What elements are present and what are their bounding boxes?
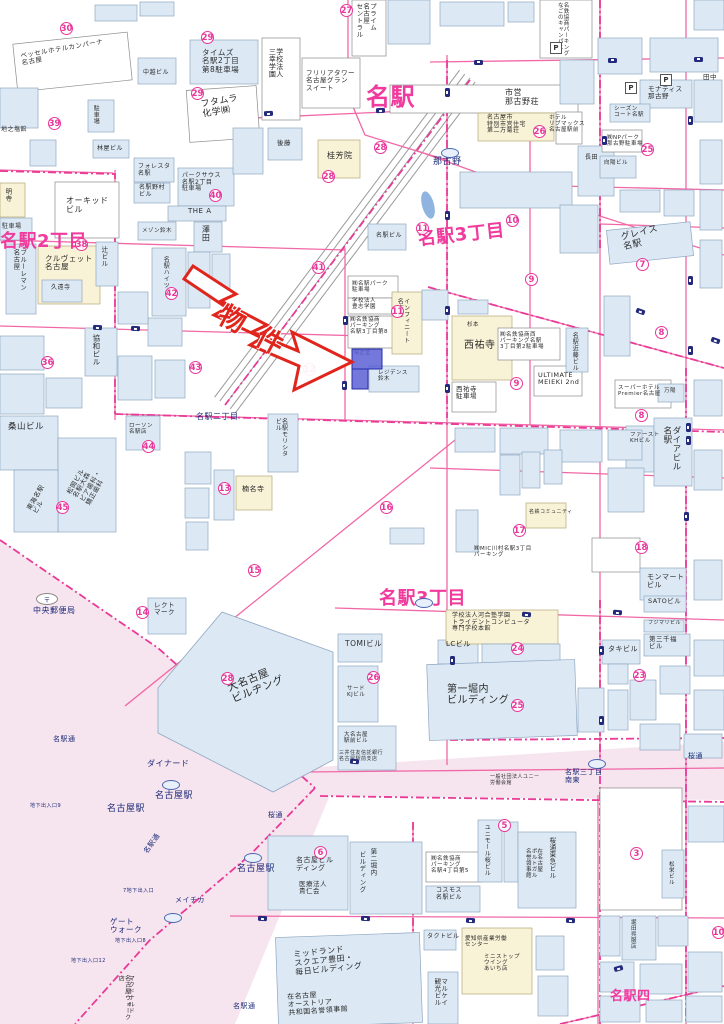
building: [190, 40, 258, 84]
map-label: ㈱名鉄協商西 パーキング名駅 3丁目第2駐車場: [500, 332, 544, 350]
road-centerline: [0, 240, 345, 250]
district-boundary-line: [0, 540, 315, 788]
block-number-badge: 25: [641, 143, 654, 156]
map-label: クルヴェット 名古屋: [45, 255, 93, 272]
transit-stop-icon: [445, 88, 450, 97]
building: [694, 640, 724, 676]
block-number-badge: 6: [314, 846, 327, 859]
transit-stop-icon: [686, 436, 691, 445]
map-label: 名駅ビル: [376, 233, 402, 240]
district-boundary-line: [115, 414, 724, 432]
map-label: 学校法人河合塾学園 トライデントコンピュータ 専門学校本館: [452, 613, 530, 633]
map-label: 名駅二丁目: [196, 413, 239, 422]
block-number-badge: 28: [322, 170, 335, 183]
building: [148, 598, 186, 634]
map-label: レジデンス 鈴木: [378, 370, 408, 382]
post-office-icon: 〒: [36, 593, 58, 605]
building: [452, 382, 496, 412]
building: [538, 976, 568, 1016]
building: [440, 2, 504, 26]
building: [46, 378, 82, 408]
building: [38, 246, 100, 304]
block-number-badge: 5: [498, 819, 511, 832]
map-label: 名駅通: [143, 833, 162, 856]
building: [600, 788, 682, 910]
map-label: フォレスタ 名駅: [138, 164, 171, 177]
building: [134, 158, 174, 182]
map-label: 東海名駅 ビル: [26, 484, 53, 516]
building: [212, 254, 230, 298]
district-label: 名駅2丁目: [0, 232, 87, 252]
transit-stop-icon: [688, 346, 693, 355]
building: [600, 156, 636, 178]
map-label: 松岡ビル 名駅大森 ピア歯科・ 矯正歯科: [66, 462, 109, 507]
map-label: 松栄ビル: [667, 861, 673, 885]
building: [522, 452, 540, 488]
block-number-badge: 3: [630, 847, 643, 860]
map-label: フジマリビル: [648, 621, 681, 627]
building: [644, 620, 684, 632]
building: [504, 822, 518, 882]
map-label: 堀田呉服店: [629, 919, 635, 949]
building: [118, 292, 148, 324]
property-highlight[interactable]: [352, 349, 382, 369]
building: [424, 930, 456, 950]
road-centerline: [125, 436, 460, 706]
building: [498, 328, 560, 360]
map-label: 名古屋駅: [107, 804, 145, 814]
map-label: THE A: [188, 208, 211, 216]
building: [615, 380, 671, 408]
block-number-badge: 9: [525, 273, 538, 286]
map-label: ダイナード: [147, 760, 189, 769]
transit-stop-icon: [465, 917, 474, 922]
building: [428, 972, 458, 1024]
building: [96, 242, 118, 286]
map-label: 7地下出入口: [123, 889, 154, 895]
transit-stop-icon: [686, 423, 691, 432]
building: [338, 634, 382, 662]
transit-stop-icon: [684, 512, 689, 521]
map-label: モンマート ビル: [647, 574, 685, 590]
building: [640, 964, 682, 994]
building: [368, 224, 406, 250]
building: [518, 832, 576, 908]
building: [185, 452, 211, 484]
map-label: ULTIMATE MEIEKI 2nd: [538, 372, 579, 387]
building: [694, 0, 724, 30]
route-badge-icon: [415, 598, 433, 608]
transit-stop-icon: [635, 307, 645, 315]
map-label: 第一堀内 ビルディング: [447, 684, 509, 706]
property-highlight[interactable]: [352, 369, 368, 389]
building: [604, 296, 630, 356]
building: [478, 820, 502, 882]
map-label: ビルディング: [358, 851, 365, 893]
map-label: 三井住友信託銀行 名古屋駅前支店: [339, 751, 383, 762]
map-label: ㈱名鉄協商 パーキング 名駅3丁目第8: [350, 317, 388, 335]
building: [602, 640, 640, 664]
map-label: マルケイ 観光ビル: [433, 978, 447, 1006]
road-centerline: [560, 186, 724, 190]
route-badge-icon: [441, 148, 459, 158]
district-boundary-line: [75, 788, 315, 1024]
map-label: 医療法人 貴仁会: [299, 881, 327, 896]
building: [0, 374, 44, 414]
block-number-badge: 45: [56, 501, 69, 514]
map-label: 名駅通: [233, 1003, 256, 1011]
map-label: グレイス 名駅: [620, 224, 661, 253]
building: [338, 726, 396, 770]
building: [578, 688, 604, 732]
road-centerline: [560, 986, 724, 1024]
map-label: ユニモール桜ビル: [483, 824, 489, 876]
building: [275, 933, 422, 1024]
building: [684, 734, 722, 758]
building: [650, 38, 718, 72]
block-number-badge: 44: [142, 440, 155, 453]
building: [544, 450, 562, 484]
map-label: 久遠寺: [51, 285, 71, 292]
map-label: 第三千福 ビル: [649, 636, 677, 651]
building: [30, 140, 56, 166]
transit-stop-icon: [710, 336, 720, 344]
map-label: LCビル: [446, 641, 471, 649]
transit-stop-icon: [521, 611, 530, 617]
building: [452, 316, 512, 380]
block-number-badge: 28: [374, 141, 387, 154]
transit-stop-icon: [688, 276, 693, 285]
map-label: ホテル リブマックス 名古屋駅前: [549, 115, 585, 133]
route-badge-icon: [162, 780, 180, 790]
building: [686, 996, 722, 1022]
transit-stop-icon: [599, 646, 604, 655]
transit-stop-icon: [257, 915, 266, 920]
building: [348, 316, 394, 348]
building: [608, 468, 644, 512]
building: [13, 32, 132, 92]
block-number-badge: 29: [201, 31, 214, 44]
building: [262, 38, 300, 120]
building: [460, 172, 572, 208]
building: [540, 0, 592, 58]
map-label: ㈱MIC川村名駅3丁目 パーキング: [474, 546, 532, 558]
transit-stop-icon: [608, 58, 617, 63]
annotation-text: 件: [250, 315, 292, 362]
building: [598, 38, 642, 74]
map-label: 地下出入口9: [30, 804, 61, 810]
building: [390, 528, 424, 544]
building: [608, 690, 628, 730]
building: [578, 146, 614, 196]
map-label: 大名古屋 駅前ビル: [344, 732, 368, 744]
map-base-layer: [0, 0, 724, 1024]
map-label: メイチカ: [175, 897, 205, 905]
district-label: 名駅四: [610, 990, 651, 1005]
parking-icon: P: [625, 82, 637, 94]
block-number-badge: 27: [340, 4, 353, 17]
transit-stop-icon: [599, 716, 604, 725]
building: [422, 290, 448, 320]
map-label: 協和ビル: [92, 334, 100, 366]
building: [426, 852, 482, 882]
map-label: TOMIビル: [345, 640, 382, 648]
building: [560, 60, 594, 104]
block-number-badge: 29: [191, 87, 204, 100]
block-number-badge: 30: [60, 22, 73, 35]
building: [178, 168, 234, 206]
building: [390, 85, 578, 113]
transit-stop-icon: [612, 609, 621, 615]
map-label: タキビル: [608, 646, 638, 654]
building: [427, 659, 578, 740]
building: [0, 218, 32, 240]
block-number-badge: 42: [165, 287, 178, 300]
map-label: サード KJビル: [347, 686, 365, 698]
road-centerline: [415, 150, 724, 255]
building: [658, 384, 684, 402]
building: [608, 430, 642, 460]
building: [688, 952, 722, 992]
dai-nagoya-building: [158, 612, 333, 792]
building: [694, 80, 722, 122]
block-number-badge: 8: [655, 326, 668, 339]
building: [233, 128, 263, 174]
city-map-canvas[interactable]: タイムズ 名駅2丁目 第8駐車場ベッセルホテルカンパーナ 名古屋学校法人 三幸学…: [0, 0, 724, 1024]
transit-stop-icon: [360, 915, 369, 920]
building: [500, 455, 520, 495]
map-label: 田中: [703, 74, 717, 81]
map-label: 杉本: [467, 322, 479, 328]
map-label: モナティス 那古野: [648, 86, 683, 101]
route-badge-icon: [244, 853, 262, 863]
block-number-badge: 38: [75, 238, 88, 251]
map-label: 第二堀内: [369, 848, 376, 876]
road-centerline: [0, 170, 113, 173]
block-number-badge: 13: [218, 482, 231, 495]
building: [268, 414, 298, 472]
transit-stop-icon: [445, 211, 450, 220]
district-boundary-line: [450, 738, 724, 740]
block-number-badge: 25: [511, 699, 524, 712]
map-label: 名古屋ウォーク店: [117, 975, 130, 1024]
building: [185, 488, 209, 518]
building: [138, 58, 176, 84]
map-label: 在名古屋 ポルトガル 名誉領事館: [524, 848, 541, 878]
building: [236, 476, 272, 510]
building: [348, 276, 398, 298]
road-centerline: [348, 0, 447, 160]
map-label: ㈱名駅パーク 駐車場: [352, 281, 388, 293]
building: [688, 806, 724, 842]
building: [186, 522, 208, 550]
water-feature: [419, 190, 438, 220]
railway-line: [215, 70, 460, 397]
building: [93, 140, 129, 158]
district-boundary-line: [320, 796, 724, 802]
map-label: オーキッド ビル: [66, 197, 109, 215]
building: [352, 0, 386, 56]
railway-line: [230, 82, 475, 409]
map-label: ゲート ウォーク: [110, 918, 142, 935]
building: [602, 130, 642, 152]
building: [152, 248, 186, 316]
block-number-badge: 18: [635, 541, 648, 554]
transit-stop-icon: [613, 964, 623, 971]
building: [660, 666, 690, 694]
building: [508, 2, 534, 22]
building: [592, 538, 640, 572]
building: [188, 252, 210, 308]
map-label: プライム 名古屋 セントラル: [355, 3, 375, 38]
map-label: 万陽: [664, 388, 676, 394]
district-label: 名駅: [366, 84, 415, 111]
map-label: 陽正堂: [354, 351, 371, 357]
road-centerline: [230, 916, 724, 918]
building: [134, 183, 170, 203]
building: [630, 680, 656, 720]
map-label: 桜通東急ビル: [548, 837, 555, 879]
map-label: 名古屋ビル ディング: [296, 857, 334, 873]
building: [664, 190, 694, 216]
block-number-badge: 41: [312, 261, 325, 274]
building: [640, 724, 680, 750]
transit-stop-icon: [474, 60, 483, 65]
map-label: 西祐寺 駐車場: [456, 386, 477, 401]
building: [560, 430, 602, 462]
transit-stop-icon: [450, 656, 455, 665]
map-label: スーパーホテル Premier名古屋: [618, 385, 661, 397]
railway-line: [220, 74, 465, 401]
block-number-badge: 14: [136, 606, 149, 619]
road-centerline: [115, 414, 724, 430]
building: [534, 366, 582, 396]
block-number-badge: 15: [248, 564, 261, 577]
map-label: 駐車場: [92, 105, 98, 125]
map-label: ブルーレマン 名古屋: [12, 249, 26, 291]
map-label: 名古屋市 特別市営住宅 第二万菊荘: [487, 115, 526, 135]
map-label: 在名古屋 オーストリア 共和国名誉領事館: [287, 990, 348, 1018]
building: [500, 428, 548, 454]
building: [694, 560, 722, 600]
building: [606, 222, 693, 265]
building: [644, 596, 686, 612]
building: [214, 470, 234, 520]
transit-stop-icon: [375, 107, 384, 112]
block-number-badge: 16: [380, 501, 393, 514]
map-label: 後藤: [277, 140, 291, 147]
parking-icon: P: [550, 42, 562, 54]
building: [662, 850, 684, 898]
map-label: パークサウス 名駅2丁目 駐車場: [182, 173, 221, 193]
block-number-badge: 23: [633, 669, 646, 682]
block-number-badge: 17: [513, 524, 526, 537]
block-number-badge: 26: [533, 125, 546, 138]
district-boundary-line: [225, 80, 470, 405]
building: [694, 450, 722, 490]
map-label: 一般社団法人ユニー 労働会館: [490, 775, 540, 786]
map-label: インフィニート 名古屋: [396, 298, 409, 344]
transit-stop-icon: [92, 324, 101, 329]
map-label: 名駅三丁目 南東: [565, 769, 603, 785]
building: [610, 104, 650, 122]
building: [318, 140, 360, 178]
map-label: SATOビル: [648, 598, 681, 605]
block-number-badge: 10: [712, 926, 724, 939]
building: [700, 240, 722, 288]
building: [155, 360, 185, 398]
map-label: 西祐寺: [464, 340, 496, 351]
building: [536, 936, 564, 970]
transit-stop-icon: [263, 110, 272, 115]
building: [302, 58, 360, 108]
building: [392, 292, 422, 354]
map-label: 那古野: [433, 157, 462, 167]
block-number-badge: 24: [511, 642, 524, 655]
map-label: 学校法人 豊志学園: [352, 298, 376, 310]
building: [118, 356, 152, 400]
railway-line: [225, 78, 470, 405]
transit-stop-icon: [694, 57, 703, 62]
district-label: 名駅3丁目: [417, 221, 506, 250]
map-label: フリリアタワー 名古屋グラン スイート: [306, 70, 355, 92]
block-number-badge: 43: [189, 361, 202, 374]
map-label: 桂芳院: [327, 152, 353, 161]
district-boundary-line: [0, 171, 115, 414]
map-label: マクドナルド: [127, 975, 133, 1014]
parking-icon: P: [660, 74, 672, 86]
building: [640, 568, 686, 600]
route-badge-icon: [588, 759, 606, 769]
block-number-badge: 40: [209, 189, 222, 202]
map-label: ミッドランド スクエア豊田・ 毎日ビルディング: [293, 944, 363, 978]
building: [566, 328, 588, 372]
building: [268, 128, 302, 160]
building: [482, 644, 560, 672]
building: [58, 438, 116, 532]
building: [600, 916, 620, 956]
map-label: 名駅近藤ビル: [571, 332, 577, 371]
map-label: 長田: [585, 155, 598, 162]
building: [622, 916, 656, 960]
building: [6, 244, 36, 314]
block-number-badge: 8: [635, 409, 648, 422]
block-number-badge: 9: [510, 377, 523, 390]
building: [426, 886, 480, 912]
map-label: ローソン 名駅店: [129, 423, 153, 435]
road-centerline: [305, 768, 724, 772]
map-label: ベッセルホテルカンパーナ 名古屋: [20, 38, 105, 67]
building: [14, 470, 58, 532]
building: [138, 222, 176, 240]
transit-stop-icon: [688, 116, 693, 125]
map-label: ㈱NPパーク 那古野駐車場: [607, 135, 643, 147]
map-label: 林屋ビル: [97, 146, 123, 153]
building: [0, 88, 38, 128]
building: [148, 318, 182, 346]
building: [694, 380, 722, 416]
building: [462, 928, 532, 994]
transit-stop-icon: [130, 325, 139, 330]
map-label: 明寺: [4, 188, 11, 202]
map-label: 中央郵便局: [33, 607, 76, 616]
building: [658, 916, 688, 946]
sakura-dori-road-zone: [300, 742, 724, 800]
map-label: 澤田: [201, 225, 209, 242]
transit-stop-icon: [349, 758, 358, 764]
building: [458, 300, 488, 314]
building: [446, 610, 558, 644]
